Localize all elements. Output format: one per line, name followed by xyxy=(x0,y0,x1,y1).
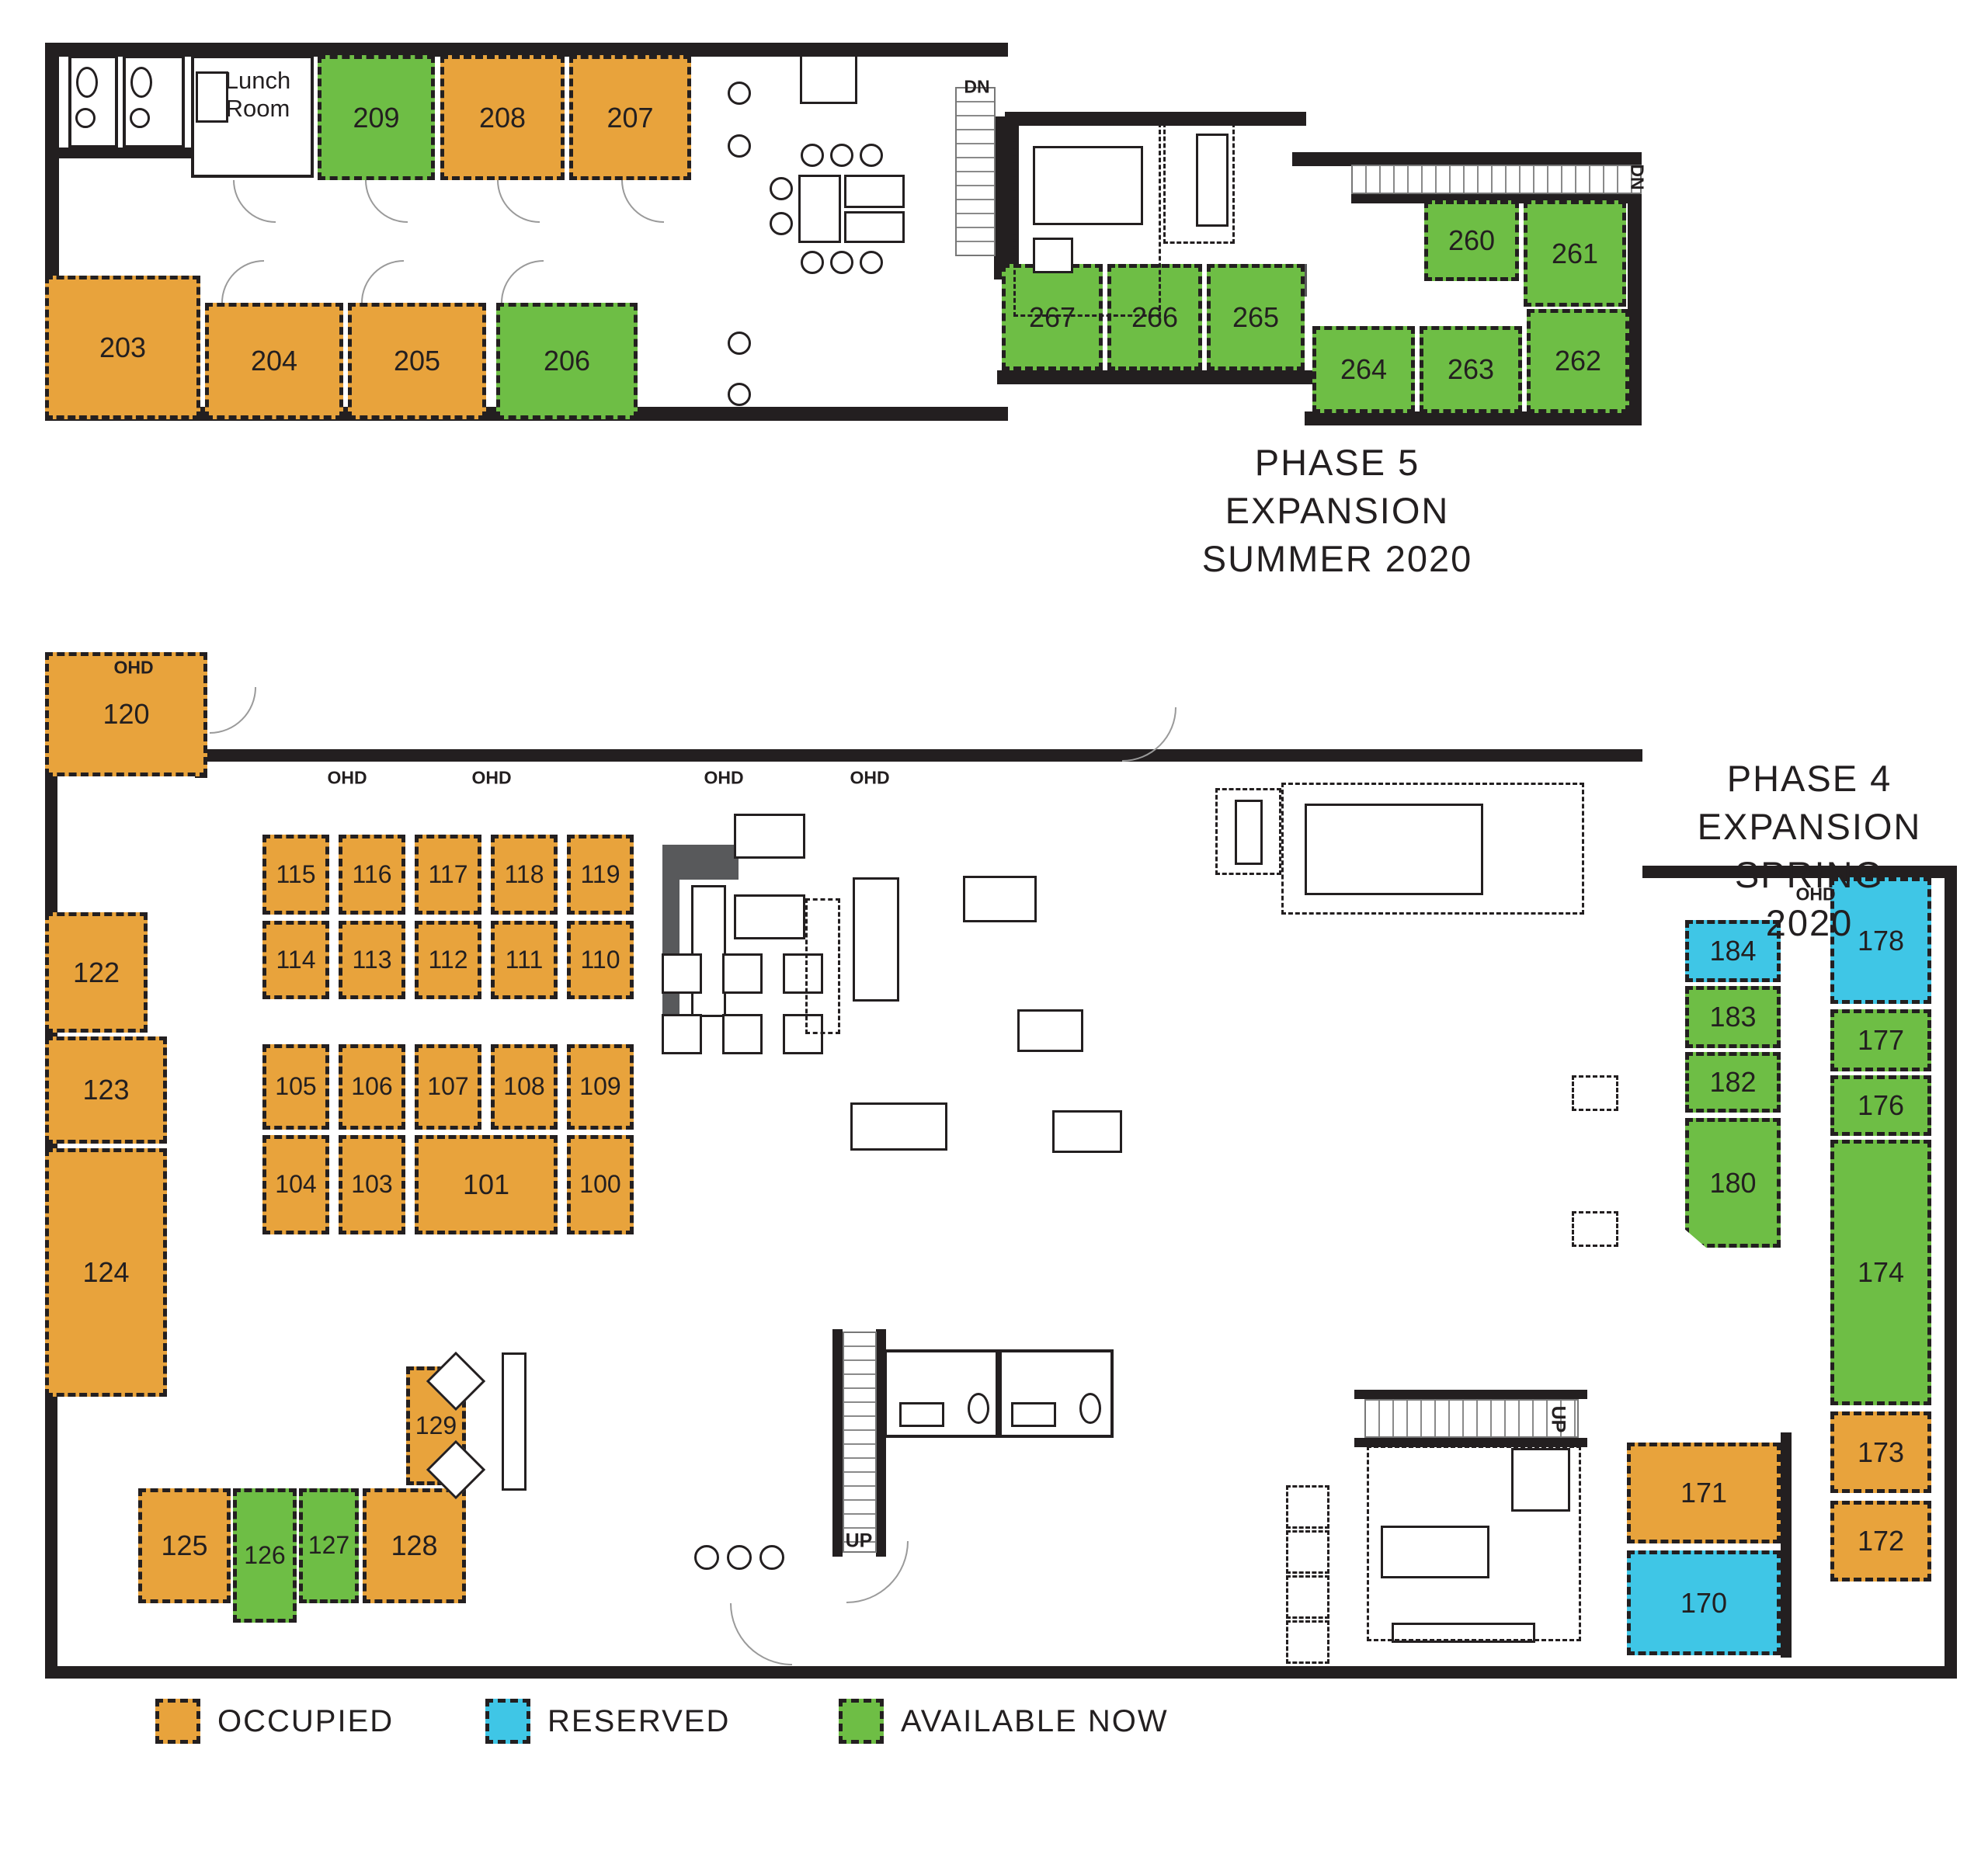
door-arc xyxy=(730,1603,792,1665)
room-114: 114 xyxy=(262,921,329,999)
furniture-rect xyxy=(722,1014,763,1054)
room-label-170: 170 xyxy=(1680,1588,1727,1618)
room-label-182: 182 xyxy=(1709,1068,1756,1097)
room-label-183: 183 xyxy=(1709,1002,1756,1032)
room-109: 109 xyxy=(567,1044,634,1130)
room-107: 107 xyxy=(415,1044,481,1130)
legend-swatch-available xyxy=(839,1699,884,1744)
chair-circle xyxy=(770,177,793,200)
legend-item-occupied: OCCUPIED xyxy=(155,1699,394,1744)
room-label-112: 112 xyxy=(428,947,467,974)
room-170: 170 xyxy=(1627,1550,1781,1655)
room-label-174: 174 xyxy=(1858,1258,1904,1287)
room-208: 208 xyxy=(440,55,565,180)
chair-circle xyxy=(830,251,853,274)
wall xyxy=(1945,866,1957,1677)
room-263: 263 xyxy=(1420,326,1522,413)
room-116: 116 xyxy=(339,835,405,915)
room-label-177: 177 xyxy=(1858,1026,1904,1055)
phase4-title-line: PHASE 4 xyxy=(1698,755,1922,803)
wall xyxy=(1354,1390,1587,1399)
room-label-127: 127 xyxy=(308,1533,349,1559)
room-label-260: 260 xyxy=(1448,226,1495,255)
room-label-105: 105 xyxy=(275,1074,316,1100)
room-label-116: 116 xyxy=(352,862,391,888)
room-label-110: 110 xyxy=(580,947,620,974)
chair-circle xyxy=(694,1545,719,1570)
door-arc xyxy=(233,180,276,223)
room-label-120: 120 xyxy=(103,700,149,729)
room-265: 265 xyxy=(1207,264,1305,370)
furniture-rect xyxy=(502,1352,527,1491)
dn-upper-center: DN xyxy=(964,77,989,98)
room-100: 100 xyxy=(567,1135,634,1234)
fixture-ellipse xyxy=(968,1393,989,1424)
dn-upper-right: DN xyxy=(1627,164,1648,189)
room-113: 113 xyxy=(339,921,405,999)
room-label-115: 115 xyxy=(276,862,315,888)
room-label-129: 129 xyxy=(415,1413,457,1439)
room-203: 203 xyxy=(45,276,200,419)
room-260: 260 xyxy=(1424,200,1519,281)
room-105: 105 xyxy=(262,1044,329,1130)
room-label-262: 262 xyxy=(1555,346,1601,376)
room-label-111: 111 xyxy=(506,947,544,974)
room-label-101: 101 xyxy=(463,1170,509,1200)
furniture-rect xyxy=(1052,1110,1122,1153)
legend-label-available: AVAILABLE NOW xyxy=(901,1704,1169,1739)
wall xyxy=(832,1329,843,1557)
chair-circle xyxy=(801,251,824,274)
room-209: 209 xyxy=(318,55,435,180)
room-label-114: 114 xyxy=(276,947,315,974)
chair-circle xyxy=(75,108,96,128)
chair-circle xyxy=(801,144,824,167)
room-127: 127 xyxy=(299,1488,359,1603)
furniture-dashed-rect xyxy=(1367,1446,1581,1641)
door-arc xyxy=(501,260,544,303)
room-174: 174 xyxy=(1830,1140,1931,1405)
room-label-207: 207 xyxy=(606,103,653,133)
phase5-title: PHASE 5EXPANSIONSUMMER 2020 xyxy=(1202,439,1473,583)
lunch-room-label: Lunch Room xyxy=(225,67,290,123)
phase4-title-line: SPRING 2020 xyxy=(1698,851,1922,947)
room-label-261: 261 xyxy=(1552,239,1598,269)
room-label-123: 123 xyxy=(82,1075,129,1105)
room-262: 262 xyxy=(1527,309,1629,413)
wall xyxy=(1305,411,1642,425)
room-261: 261 xyxy=(1524,200,1626,307)
room-180: 180 xyxy=(1685,1118,1781,1248)
phase5-title-line: EXPANSION xyxy=(1202,487,1473,535)
room-205: 205 xyxy=(348,303,486,419)
furniture-dashed-rect xyxy=(805,898,840,1034)
up-lower-center: UP xyxy=(846,1530,873,1553)
room-label-172: 172 xyxy=(1858,1526,1904,1556)
chair-circle xyxy=(860,144,883,167)
furniture-rect xyxy=(662,1014,702,1054)
furniture-rect xyxy=(734,814,805,859)
room-173: 173 xyxy=(1830,1411,1931,1493)
phase5-title-line: PHASE 5 xyxy=(1202,439,1473,487)
room-111: 111 xyxy=(491,921,558,999)
ohd-3: OHD xyxy=(704,768,743,789)
room-112: 112 xyxy=(415,921,481,999)
furniture-dashed-rect xyxy=(1572,1211,1618,1247)
room-label-122: 122 xyxy=(73,958,120,988)
room-label-119: 119 xyxy=(580,862,620,888)
wall xyxy=(45,1666,1957,1679)
legend-swatch-occupied xyxy=(155,1699,200,1744)
chair-circle xyxy=(860,251,883,274)
room-label-107: 107 xyxy=(427,1074,468,1100)
room-207: 207 xyxy=(569,55,691,180)
wall xyxy=(207,749,1642,762)
furniture-dashed-rect xyxy=(1286,1575,1329,1619)
fixture-ellipse xyxy=(130,67,152,98)
ohd-2: OHD xyxy=(471,768,511,789)
room-label-103: 103 xyxy=(351,1172,392,1198)
stairs xyxy=(843,1332,877,1553)
chair-circle xyxy=(130,108,150,128)
room-118: 118 xyxy=(491,835,558,915)
door-arc xyxy=(365,180,408,223)
room-label-203: 203 xyxy=(99,333,146,363)
room-108: 108 xyxy=(491,1044,558,1130)
furniture-dashed-rect xyxy=(1163,123,1235,244)
wall xyxy=(1781,1432,1792,1658)
ohd-1: OHD xyxy=(327,768,367,789)
room-label-126: 126 xyxy=(244,1543,285,1569)
room-128: 128 xyxy=(363,1488,466,1603)
ohd-4: OHD xyxy=(850,768,889,789)
room-110: 110 xyxy=(567,921,634,999)
furniture-rect xyxy=(798,175,841,243)
room-label-109: 109 xyxy=(579,1074,620,1100)
chair-circle xyxy=(728,82,751,105)
fixture-ellipse xyxy=(76,67,98,98)
furniture-dashed-rect xyxy=(1286,1530,1329,1574)
room-label-173: 173 xyxy=(1858,1438,1904,1467)
furniture-rect xyxy=(196,71,228,123)
room-117: 117 xyxy=(415,835,481,915)
room-label-263: 263 xyxy=(1448,355,1494,384)
room-122: 122 xyxy=(45,912,148,1033)
furniture-dashed-rect xyxy=(1281,783,1584,915)
room-101: 101 xyxy=(415,1135,558,1234)
room-171: 171 xyxy=(1627,1443,1781,1543)
furniture-rect xyxy=(734,894,805,939)
stairs xyxy=(1351,165,1642,194)
furniture-dashed-rect xyxy=(1013,123,1161,317)
room-label-205: 205 xyxy=(394,346,440,376)
room-176: 176 xyxy=(1830,1075,1931,1136)
furniture-dashed-rect xyxy=(1215,788,1281,875)
room-label-204: 204 xyxy=(251,346,297,376)
room-103: 103 xyxy=(339,1135,405,1234)
furniture-rect xyxy=(963,876,1037,922)
chair-circle xyxy=(728,134,751,158)
wall xyxy=(997,370,1315,384)
room-label-206: 206 xyxy=(544,346,590,376)
room-label-118: 118 xyxy=(504,862,544,888)
furniture-rect xyxy=(844,211,905,243)
door-arc xyxy=(221,260,264,303)
bathroom-upper-2 xyxy=(123,55,185,148)
ohd-room-120: OHD xyxy=(113,658,153,679)
room-label-104: 104 xyxy=(275,1172,316,1198)
furniture-rect xyxy=(800,54,857,104)
phase4-title-line: EXPANSION xyxy=(1698,803,1922,851)
room-119: 119 xyxy=(567,835,634,915)
furniture-rect xyxy=(722,953,763,994)
furniture-rect xyxy=(844,175,905,208)
chair-circle xyxy=(770,212,793,235)
room-125: 125 xyxy=(138,1488,231,1603)
furniture-dashed-rect xyxy=(1286,1620,1329,1664)
furniture-rect xyxy=(1011,1402,1056,1427)
dark-wall xyxy=(662,845,739,880)
room-label-100: 100 xyxy=(579,1172,620,1198)
room-204: 204 xyxy=(205,303,343,419)
room-264: 264 xyxy=(1312,326,1415,413)
floor-plan: 2092082072032042052062672662652642632622… xyxy=(0,0,1988,1861)
room-182: 182 xyxy=(1685,1052,1781,1113)
phase4-title: PHASE 4EXPANSIONSPRING 2020 xyxy=(1698,755,1922,947)
furniture-rect xyxy=(850,1102,947,1151)
furniture-rect xyxy=(662,953,702,994)
door-arc xyxy=(210,687,256,734)
room-label-106: 106 xyxy=(351,1074,392,1100)
room-label-108: 108 xyxy=(503,1074,544,1100)
room-label-113: 113 xyxy=(352,947,391,974)
room-label-117: 117 xyxy=(428,862,467,888)
room-115: 115 xyxy=(262,835,329,915)
room-label-176: 176 xyxy=(1858,1091,1904,1120)
chair-circle xyxy=(728,383,751,406)
furniture-rect xyxy=(853,877,899,1002)
chair-circle xyxy=(728,332,751,355)
legend-swatch-reserved xyxy=(485,1699,530,1744)
chair-circle xyxy=(727,1545,752,1570)
furniture-dashed-rect xyxy=(1286,1485,1329,1529)
furniture-rect xyxy=(1017,1009,1083,1052)
room-label-124: 124 xyxy=(82,1258,129,1287)
room-label-180: 180 xyxy=(1709,1168,1756,1198)
room-label-125: 125 xyxy=(161,1531,207,1561)
legend-label-occupied: OCCUPIED xyxy=(217,1704,394,1739)
room-172: 172 xyxy=(1830,1501,1931,1582)
room-104: 104 xyxy=(262,1135,329,1234)
room-177: 177 xyxy=(1830,1009,1931,1071)
chair-circle xyxy=(759,1545,784,1570)
fixture-ellipse xyxy=(1079,1393,1101,1424)
furniture-dashed-rect xyxy=(1572,1075,1618,1111)
legend-item-reserved: RESERVED xyxy=(485,1699,730,1744)
phase5-title-line: SUMMER 2020 xyxy=(1202,535,1473,583)
room-126: 126 xyxy=(233,1488,297,1623)
stairs xyxy=(955,87,996,256)
chair-circle xyxy=(830,144,853,167)
room-label-171: 171 xyxy=(1680,1478,1727,1508)
legend-item-available: AVAILABLE NOW xyxy=(839,1699,1169,1744)
room-label-208: 208 xyxy=(479,103,526,133)
room-206: 206 xyxy=(496,303,638,419)
room-label-265: 265 xyxy=(1232,303,1279,332)
room-106: 106 xyxy=(339,1044,405,1130)
room-124: 124 xyxy=(45,1148,167,1397)
room-123: 123 xyxy=(45,1036,167,1144)
room-label-209: 209 xyxy=(353,103,399,133)
up-lower-right: UP xyxy=(1547,1406,1569,1433)
room-label-264: 264 xyxy=(1340,355,1387,384)
door-arc xyxy=(621,180,664,223)
room-label-128: 128 xyxy=(391,1531,437,1561)
furniture-rect xyxy=(691,885,726,1017)
room-183: 183 xyxy=(1685,986,1781,1048)
door-arc xyxy=(497,180,540,223)
furniture-rect xyxy=(899,1402,944,1427)
legend-label-reserved: RESERVED xyxy=(547,1704,730,1739)
door-arc xyxy=(361,260,404,303)
